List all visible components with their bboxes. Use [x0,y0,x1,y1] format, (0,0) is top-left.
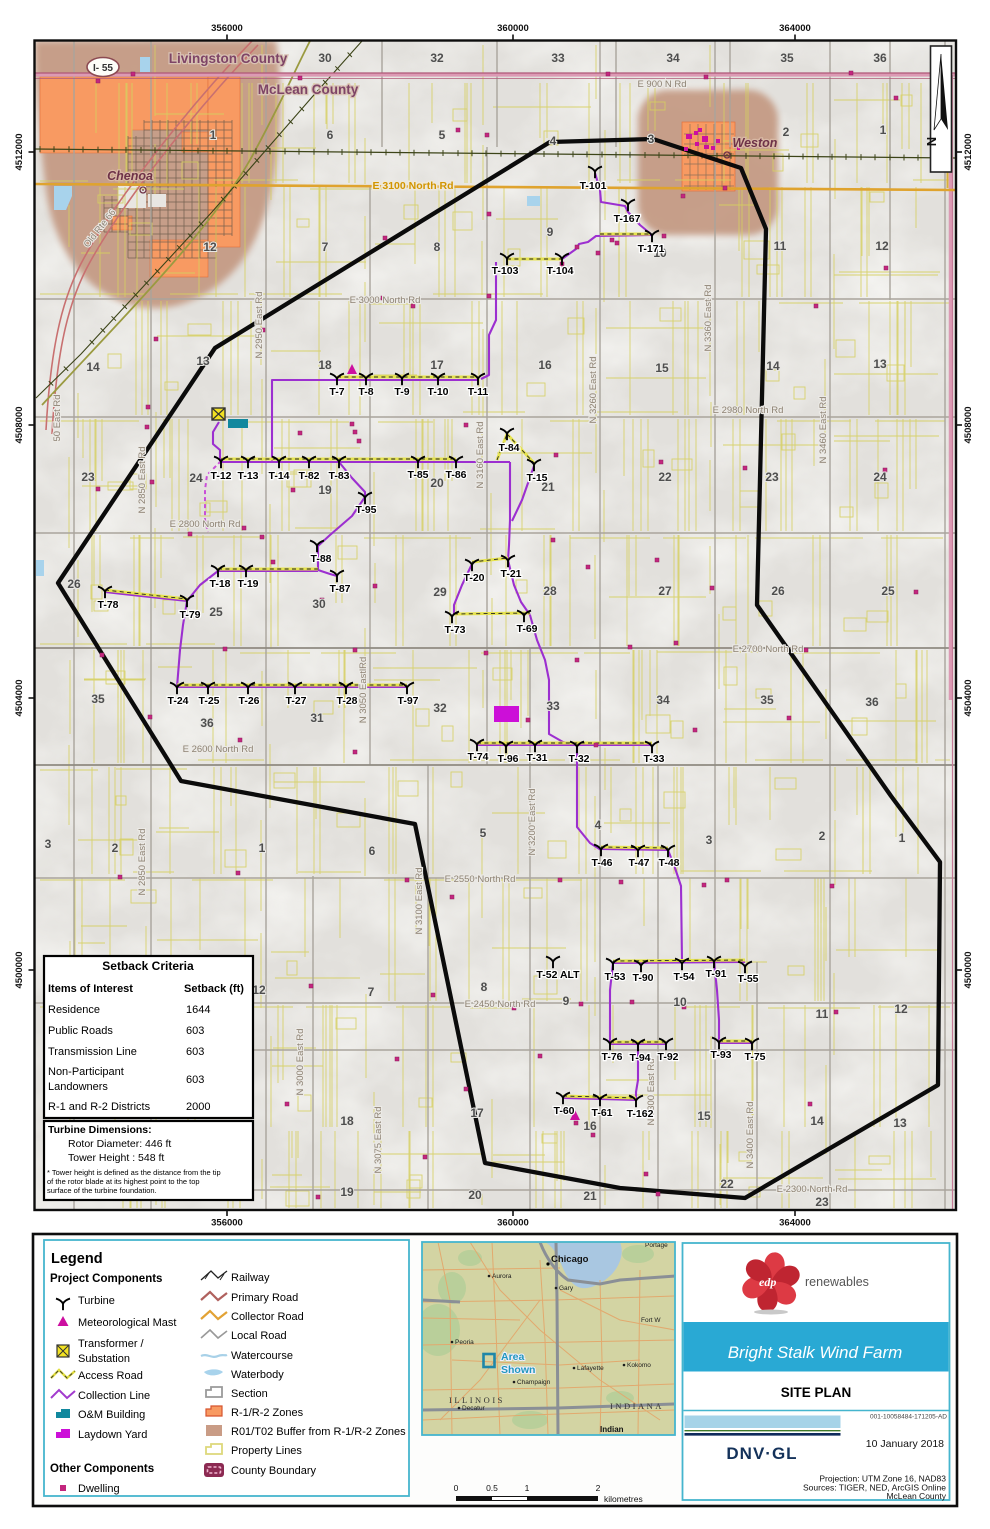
svg-text:T-162: T-162 [627,1108,654,1120]
svg-text:28: 28 [543,584,557,598]
svg-text:34: 34 [666,51,680,65]
svg-text:4512000: 4512000 [963,134,974,171]
svg-text:T-86: T-86 [445,469,466,481]
svg-text:N 3050 EastlRd: N 3050 EastlRd [358,657,369,724]
svg-text:N 3075 East Rd: N 3075 East Rd [373,1106,384,1173]
svg-text:4500000: 4500000 [14,952,25,989]
svg-text:Livingston County: Livingston County [169,51,288,66]
svg-text:N 3360 East Rd: N 3360 East Rd [703,284,714,351]
svg-text:Shown: Shown [501,1364,535,1376]
svg-text:25: 25 [209,605,223,619]
svg-text:4512000: 4512000 [14,134,25,171]
svg-text:31: 31 [310,711,324,725]
svg-text:360000: 360000 [497,1218,529,1229]
svg-text:T-78: T-78 [97,599,118,611]
svg-text:of the rotor blade at its high: of the rotor blade at its highest point … [47,1177,200,1186]
svg-text:N: N [924,137,939,146]
svg-text:4508000: 4508000 [14,407,25,444]
svg-text:4504000: 4504000 [963,680,974,717]
svg-text:T-167: T-167 [614,213,641,225]
svg-text:T-53: T-53 [604,971,625,983]
svg-text:19: 19 [340,1185,354,1199]
svg-text:34: 34 [656,693,670,707]
svg-text:Decatur: Decatur [462,1405,486,1412]
svg-text:T-55: T-55 [737,973,758,985]
svg-text:T-82: T-82 [298,470,319,482]
svg-text:Transformer /: Transformer / [78,1338,145,1350]
svg-text:T-9: T-9 [394,386,409,398]
svg-text:5: 5 [480,826,487,840]
svg-text:5: 5 [439,128,446,142]
svg-text:McLean County: McLean County [258,82,359,97]
svg-text:Portage: Portage [645,1242,668,1249]
svg-text:13: 13 [893,1116,907,1130]
svg-text:23: 23 [765,470,779,484]
svg-text:Gary: Gary [559,1285,574,1292]
svg-text:8: 8 [434,240,441,254]
svg-text:E 2550 North Rd: E 2550 North Rd [445,874,516,885]
svg-text:Weston: Weston [733,136,778,150]
svg-text:24: 24 [873,470,887,484]
svg-text:Meteorological Mast: Meteorological Mast [78,1317,176,1329]
svg-text:4508000: 4508000 [963,407,974,444]
svg-text:17: 17 [430,358,444,372]
svg-text:30: 30 [312,597,326,611]
svg-text:T-96: T-96 [497,753,518,765]
svg-text:T-11: T-11 [468,386,489,398]
svg-text:Setback (ft): Setback (ft) [184,983,244,995]
svg-text:32: 32 [433,701,447,715]
svg-text:50 East Rd: 50 East Rd [52,395,63,442]
svg-text:364000: 364000 [779,1218,811,1229]
svg-text:INDIANA: INDIANA [610,1401,664,1411]
svg-text:O&M Building: O&M Building [78,1409,145,1421]
svg-text:T-47: T-47 [628,857,649,869]
svg-text:T-91: T-91 [705,968,726,980]
svg-text:R-1 and R-2 Districts: R-1 and R-2 Districts [48,1101,151,1113]
svg-text:N 3000 East Rd: N 3000 East Rd [295,1028,306,1095]
svg-text:1: 1 [525,1483,530,1493]
svg-text:T-31: T-31 [526,752,547,764]
svg-text:30: 30 [318,51,332,65]
svg-text:4504000: 4504000 [14,680,25,717]
svg-text:Legend: Legend [51,1251,103,1267]
svg-text:Rotor Diameter: 446 ft: Rotor Diameter: 446 ft [68,1138,171,1150]
svg-text:T-26: T-26 [238,695,259,707]
svg-text:N 3260 East Rd: N 3260 East Rd [588,356,599,423]
svg-text:26: 26 [67,577,81,591]
svg-text:T-33: T-33 [643,753,664,765]
svg-text:T-28: T-28 [336,695,357,707]
svg-text:4: 4 [550,134,557,148]
svg-text:Turbine: Turbine [78,1295,115,1307]
svg-text:DNV·GL: DNV·GL [726,1444,797,1463]
svg-text:Laydown Yard: Laydown Yard [78,1429,147,1441]
svg-text:35: 35 [91,692,105,706]
svg-text:E 900 N Rd: E 900 N Rd [637,79,686,90]
svg-text:Dwelling: Dwelling [78,1483,120,1495]
svg-text:N 3200 East Rd: N 3200 East Rd [527,788,538,855]
svg-text:T-48: T-48 [658,857,679,869]
svg-text:T-54: T-54 [673,971,694,983]
svg-text:360000: 360000 [497,23,529,34]
svg-text:13: 13 [873,357,887,371]
svg-text:Primary Road: Primary Road [231,1292,298,1304]
svg-text:603: 603 [186,1025,204,1037]
svg-text:T-84: T-84 [498,442,519,454]
svg-text:Items of Interest: Items of Interest [48,983,133,995]
svg-text:T-95: T-95 [355,504,376,516]
svg-text:E 2300 North Rd: E 2300 North Rd [777,1184,848,1195]
svg-text:T-79: T-79 [179,609,200,621]
svg-text:22: 22 [658,470,672,484]
svg-text:11: 11 [774,239,787,253]
svg-text:T-88: T-88 [310,553,331,565]
svg-text:18: 18 [318,358,332,372]
svg-text:McLean County: McLean County [886,1491,946,1501]
svg-text:14: 14 [810,1114,824,1128]
svg-text:edp: edp [759,1275,776,1289]
svg-text:T-21: T-21 [500,568,521,580]
svg-text:33: 33 [551,51,565,65]
svg-text:Waterbody: Waterbody [231,1369,284,1381]
svg-text:Setback Criteria: Setback Criteria [102,959,194,973]
svg-text:23: 23 [81,470,95,484]
svg-text:18: 18 [340,1114,354,1128]
svg-text:7: 7 [322,240,329,254]
svg-text:County Boundary: County Boundary [231,1465,316,1477]
svg-text:35: 35 [780,51,794,65]
svg-text:E 2450 North Rd: E 2450 North Rd [465,999,536,1010]
svg-text:001-10058484-171205-AD: 001-10058484-171205-AD [870,1414,947,1421]
svg-text:T-87: T-87 [329,583,350,595]
svg-text:22: 22 [720,1177,734,1191]
svg-text:1644: 1644 [186,1004,210,1016]
svg-text:12: 12 [203,240,217,254]
svg-text:E 2600 North Rd: E 2600 North Rd [183,744,254,755]
svg-text:E 3100 North Rd: E 3100 North Rd [372,180,453,192]
svg-text:T-32: T-32 [568,753,589,765]
svg-text:T-27: T-27 [285,695,306,707]
svg-text:Public Roads: Public Roads [48,1025,113,1037]
svg-text:9: 9 [563,994,570,1008]
svg-text:Transmission Line: Transmission Line [48,1046,137,1058]
svg-text:0.5: 0.5 [486,1483,498,1493]
svg-text:N 3460 East Rd: N 3460 East Rd [818,396,829,463]
svg-text:T-74: T-74 [467,751,488,763]
svg-text:T-83: T-83 [328,470,349,482]
svg-text:12: 12 [875,239,889,253]
svg-text:Residence: Residence [48,1004,100,1016]
svg-text:T-101: T-101 [580,180,607,192]
svg-text:Local Road: Local Road [231,1330,287,1342]
svg-text:21: 21 [583,1189,597,1203]
svg-text:16: 16 [583,1119,597,1133]
svg-text:32: 32 [430,51,444,65]
svg-text:T-92: T-92 [657,1051,678,1063]
svg-text:603: 603 [186,1074,204,1086]
svg-text:Collector Road: Collector Road [231,1311,304,1323]
svg-text:7: 7 [368,985,375,999]
svg-text:356000: 356000 [211,1218,243,1229]
svg-text:29: 29 [433,585,447,599]
svg-text:26: 26 [771,584,785,598]
svg-text:T-76: T-76 [601,1051,622,1063]
svg-text:N 2950 East Rd: N 2950 East Rd [254,291,265,358]
svg-text:6: 6 [369,844,376,858]
svg-text:2: 2 [819,829,826,843]
svg-text:0: 0 [454,1483,459,1493]
svg-text:T-7: T-7 [329,386,344,398]
svg-text:Aurora: Aurora [492,1273,512,1280]
svg-text:* Tower height is defined as t: * Tower height is defined as the distanc… [47,1168,221,1177]
svg-text:T-15: T-15 [526,472,547,484]
svg-text:Champaign: Champaign [517,1379,551,1386]
svg-text:1: 1 [899,831,906,845]
svg-text:10: 10 [673,995,687,1009]
svg-text:12: 12 [894,1002,908,1016]
svg-text:T-90: T-90 [632,972,653,984]
svg-text:20: 20 [468,1188,482,1202]
svg-text:14: 14 [86,360,100,374]
svg-text:Section: Section [231,1388,268,1400]
svg-text:N 2850 East Rd: N 2850 East Rd [137,828,148,895]
svg-text:T-104: T-104 [547,265,574,277]
svg-text:35: 35 [760,693,774,707]
svg-text:T-25: T-25 [198,695,219,707]
svg-text:2: 2 [783,125,790,139]
svg-text:T-93: T-93 [710,1049,731,1061]
svg-text:E 3000 North Rd: E 3000 North Rd [350,295,421,306]
svg-text:27: 27 [658,584,672,598]
svg-text:4500000: 4500000 [963,952,974,989]
svg-text:36: 36 [200,716,214,730]
svg-text:T-97: T-97 [397,695,418,707]
svg-text:T-75: T-75 [744,1051,765,1063]
svg-text:E 2700 North Rd: E 2700 North Rd [733,644,804,655]
svg-text:Peoria: Peoria [455,1339,474,1346]
svg-text:9: 9 [547,225,554,239]
svg-text:356000: 356000 [211,23,243,34]
svg-text:3: 3 [706,833,713,847]
svg-text:E 2800 North Rd: E 2800 North Rd [170,519,241,530]
svg-text:Watercourse: Watercourse [231,1350,293,1362]
svg-text:R-1/R-2 Zones: R-1/R-2 Zones [231,1407,304,1419]
svg-text:36: 36 [873,51,887,65]
svg-text:Property Lines: Property Lines [231,1445,302,1457]
svg-text:T-94: T-94 [629,1052,650,1064]
svg-text:24: 24 [189,471,203,485]
svg-text:15: 15 [655,361,669,375]
svg-text:T-60: T-60 [553,1105,574,1117]
svg-text:11: 11 [816,1007,829,1021]
svg-text:T-24: T-24 [167,695,188,707]
svg-text:Non-Participant: Non-Participant [48,1066,124,1078]
svg-text:N 3100 East Rd: N 3100 East Rd [414,867,425,934]
svg-text:T-46: T-46 [591,857,612,869]
svg-text:Railway: Railway [231,1272,270,1284]
svg-text:surface of the turbine foundat: surface of the turbine foundation. [47,1186,157,1195]
svg-text:T-8: T-8 [358,386,373,398]
svg-text:Chenoa: Chenoa [107,169,153,183]
svg-text:I- 55: I- 55 [93,63,113,74]
svg-text:Fort W: Fort W [641,1317,661,1324]
svg-text:T-73: T-73 [444,624,465,636]
svg-text:23: 23 [815,1195,829,1209]
svg-text:Bright Stalk Wind Farm: Bright Stalk Wind Farm [728,1343,903,1362]
svg-text:T-13: T-13 [237,470,258,482]
svg-text:36: 36 [865,695,879,709]
svg-text:33: 33 [546,699,560,713]
svg-text:Access Road: Access Road [78,1370,143,1382]
svg-text:R01/T02 Buffer from R-1/R-2 Zo: R01/T02 Buffer from R-1/R-2 Zones [231,1426,406,1438]
svg-text:17: 17 [470,1106,484,1120]
svg-text:Substation: Substation [78,1353,130,1365]
svg-text:T-61: T-61 [591,1107,612,1119]
svg-text:Indian: Indian [600,1425,624,1434]
svg-text:Other Components: Other Components [50,1463,154,1475]
svg-text:N 3400 East Rd: N 3400 East Rd [745,1101,756,1168]
svg-text:Tower Height : 548 ft: Tower Height : 548 ft [68,1152,164,1164]
svg-text:3: 3 [45,837,52,851]
svg-text:N 3160 East Rd: N 3160 East Rd [475,421,486,488]
svg-text:Project Components: Project Components [50,1273,162,1285]
svg-text:25: 25 [881,584,895,598]
svg-text:4: 4 [595,818,602,832]
svg-text:3: 3 [648,132,655,146]
svg-text:603: 603 [186,1046,204,1058]
svg-text:15: 15 [697,1109,711,1123]
svg-text:T-12: T-12 [210,470,231,482]
svg-text:14: 14 [766,359,780,373]
svg-text:2: 2 [596,1483,601,1493]
svg-text:renewables: renewables [805,1275,869,1289]
svg-text:10 January 2018: 10 January 2018 [866,1438,944,1450]
svg-text:12: 12 [252,983,266,997]
svg-text:Lafayette: Lafayette [577,1365,604,1372]
svg-text:2: 2 [112,841,119,855]
svg-text:T-14: T-14 [268,470,289,482]
svg-text:Area: Area [501,1351,525,1363]
svg-text:1: 1 [210,128,217,142]
svg-text:20: 20 [430,476,444,490]
svg-text:16: 16 [538,358,552,372]
svg-text:19: 19 [318,483,332,497]
svg-text:1: 1 [880,123,887,137]
svg-text:T-85: T-85 [407,469,428,481]
svg-text:Chicago: Chicago [551,1254,589,1265]
svg-text:364000: 364000 [779,23,811,34]
svg-text:T-103: T-103 [492,265,519,277]
svg-text:T-171: T-171 [638,243,665,255]
svg-text:T-19: T-19 [237,578,258,590]
svg-text:T-18: T-18 [209,578,230,590]
svg-text:Landowners: Landowners [48,1081,108,1093]
svg-text:6: 6 [327,128,334,142]
svg-text:1: 1 [259,841,266,855]
svg-text:T-10: T-10 [427,386,448,398]
svg-text:Turbine Dimensions:: Turbine Dimensions: [48,1124,152,1136]
svg-text:ILLINOIS: ILLINOIS [449,1395,505,1405]
svg-text:Kokomo: Kokomo [627,1362,651,1369]
svg-text:kilometres: kilometres [604,1494,643,1504]
svg-text:13: 13 [196,354,210,368]
svg-text:8: 8 [481,980,488,994]
svg-text:T-69: T-69 [516,623,537,635]
svg-text:Collection Line: Collection Line [78,1390,150,1402]
svg-text:2000: 2000 [186,1101,210,1113]
svg-text:T-52 ALT: T-52 ALT [536,969,580,981]
svg-text:N 2850 East Rd: N 2850 East Rd [137,446,148,513]
svg-text:T-20: T-20 [463,572,484,584]
svg-text:SITE PLAN: SITE PLAN [781,1385,852,1400]
svg-text:E 2980 North Rd: E 2980 North Rd [713,405,784,416]
